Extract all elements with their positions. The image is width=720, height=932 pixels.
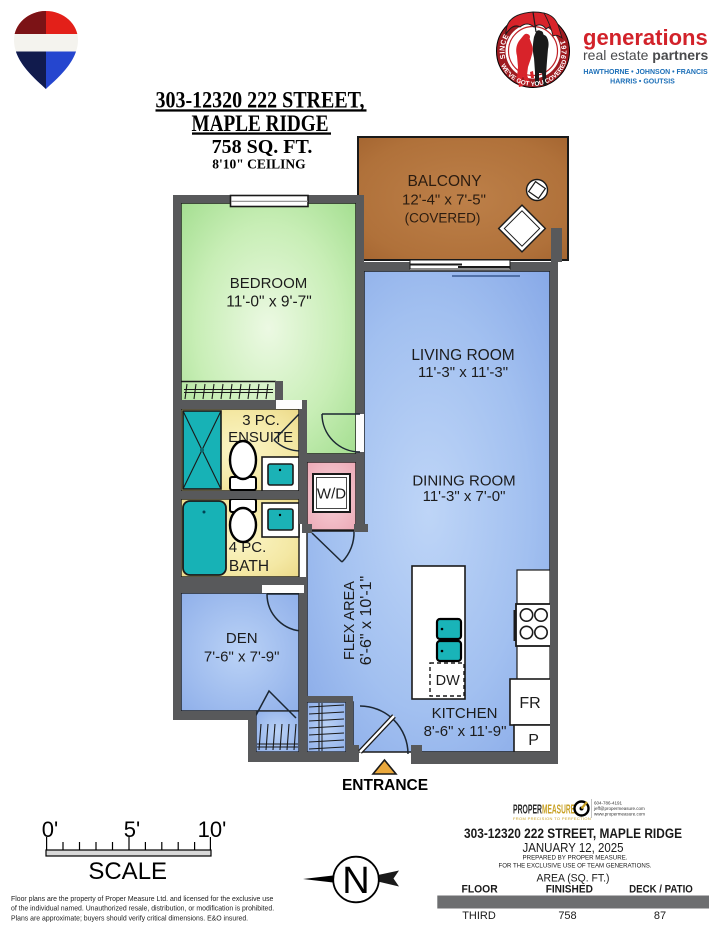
svg-text:JANUARY 12, 2025: JANUARY 12, 2025 — [523, 841, 624, 855]
svg-text:BEDROOM: BEDROOM — [230, 275, 308, 292]
svg-text:Floor plans are the property o: Floor plans are the property of Proper M… — [11, 896, 274, 903]
svg-text:DECK / PATIO: DECK / PATIO — [629, 884, 693, 896]
svg-text:758: 758 — [558, 910, 576, 922]
svg-text:303-12320 222 STREET, MAPLE RI: 303-12320 222 STREET, MAPLE RIDGE — [464, 826, 682, 841]
svg-text:11'-0" x 9'-7": 11'-0" x 9'-7" — [226, 294, 312, 311]
svg-text:Plans are approximate; buyers: Plans are approximate; buyers should ver… — [11, 915, 248, 922]
svg-text:DW: DW — [436, 673, 460, 689]
svg-text:ENTRANCE: ENTRANCE — [342, 777, 428, 794]
svg-text:FROM PRECISION TO PERFECTION: FROM PRECISION TO PERFECTION — [513, 816, 591, 821]
svg-text:6'-6" x 10'-1": 6'-6" x 10'-1" — [358, 576, 375, 666]
svg-text:0': 0' — [42, 817, 58, 842]
svg-text:(COVERED): (COVERED) — [405, 210, 481, 225]
svg-text:FLOOR: FLOOR — [462, 884, 498, 896]
svg-text:real estate partners: real estate partners — [583, 47, 709, 63]
svg-text:PREPARED BY PROPER MEASURE.: PREPARED BY PROPER MEASURE. — [523, 855, 628, 862]
svg-text:MEASURE: MEASURE — [542, 803, 575, 817]
svg-text:HARRIS • GOUTSIS: HARRIS • GOUTSIS — [610, 79, 675, 86]
svg-text:HAWTHORNE • JOHNSON • FRANCIS: HAWTHORNE • JOHNSON • FRANCIS — [583, 69, 708, 76]
svg-text:11'-3" x 11'-3": 11'-3" x 11'-3" — [418, 364, 508, 381]
svg-text:MAPLE RIDGE: MAPLE RIDGE — [192, 111, 329, 136]
svg-text:THIRD: THIRD — [462, 910, 496, 922]
svg-text:604-786-4191: 604-786-4191 — [594, 801, 623, 806]
svg-text:12'-4" x 7'-5": 12'-4" x 7'-5" — [402, 192, 486, 209]
svg-text:jeff@propermeasure.com: jeff@propermeasure.com — [593, 806, 645, 811]
svg-text:7'-6" x 7'-9": 7'-6" x 7'-9" — [204, 649, 280, 666]
svg-text:PROPER: PROPER — [513, 803, 542, 817]
svg-text:FR: FR — [519, 695, 540, 712]
svg-text:10': 10' — [198, 817, 227, 842]
svg-text:N: N — [342, 860, 369, 902]
svg-text:www.propermeasure.com: www.propermeasure.com — [594, 812, 645, 817]
svg-text:LIVING ROOM: LIVING ROOM — [411, 347, 514, 364]
svg-text:DINING ROOM: DINING ROOM — [412, 473, 515, 490]
svg-text:11'-3" x 7'-0": 11'-3" x 7'-0" — [423, 488, 506, 505]
svg-text:FOR THE EXCLUSIVE USE OF TEAM: FOR THE EXCLUSIVE USE OF TEAM GENERATION… — [499, 863, 652, 870]
svg-text:8'10" CEILING: 8'10" CEILING — [212, 157, 306, 172]
svg-text:5': 5' — [124, 817, 140, 842]
svg-text:of the individual named. Unaut: of the individual named. Unauthorized re… — [11, 906, 274, 913]
svg-text:BATH: BATH — [229, 558, 269, 575]
svg-text:DEN: DEN — [226, 630, 258, 647]
svg-text:8'-6" x 11'-9": 8'-6" x 11'-9" — [424, 723, 507, 740]
svg-text:FLEX AREA: FLEX AREA — [342, 581, 358, 660]
svg-text:303-12320 222 STREET,: 303-12320 222 STREET, — [156, 88, 365, 113]
svg-text:SCALE: SCALE — [88, 858, 167, 885]
svg-text:KITCHEN: KITCHEN — [432, 705, 498, 722]
svg-text:FINISHED: FINISHED — [546, 884, 593, 896]
svg-text:P: P — [528, 732, 539, 749]
svg-text:87: 87 — [654, 910, 666, 922]
svg-text:W/D: W/D — [317, 486, 346, 503]
svg-text:758 SQ. FT.: 758 SQ. FT. — [212, 136, 313, 158]
svg-text:3 PC.: 3 PC. — [242, 412, 280, 429]
svg-text:BALCONY: BALCONY — [407, 173, 481, 190]
